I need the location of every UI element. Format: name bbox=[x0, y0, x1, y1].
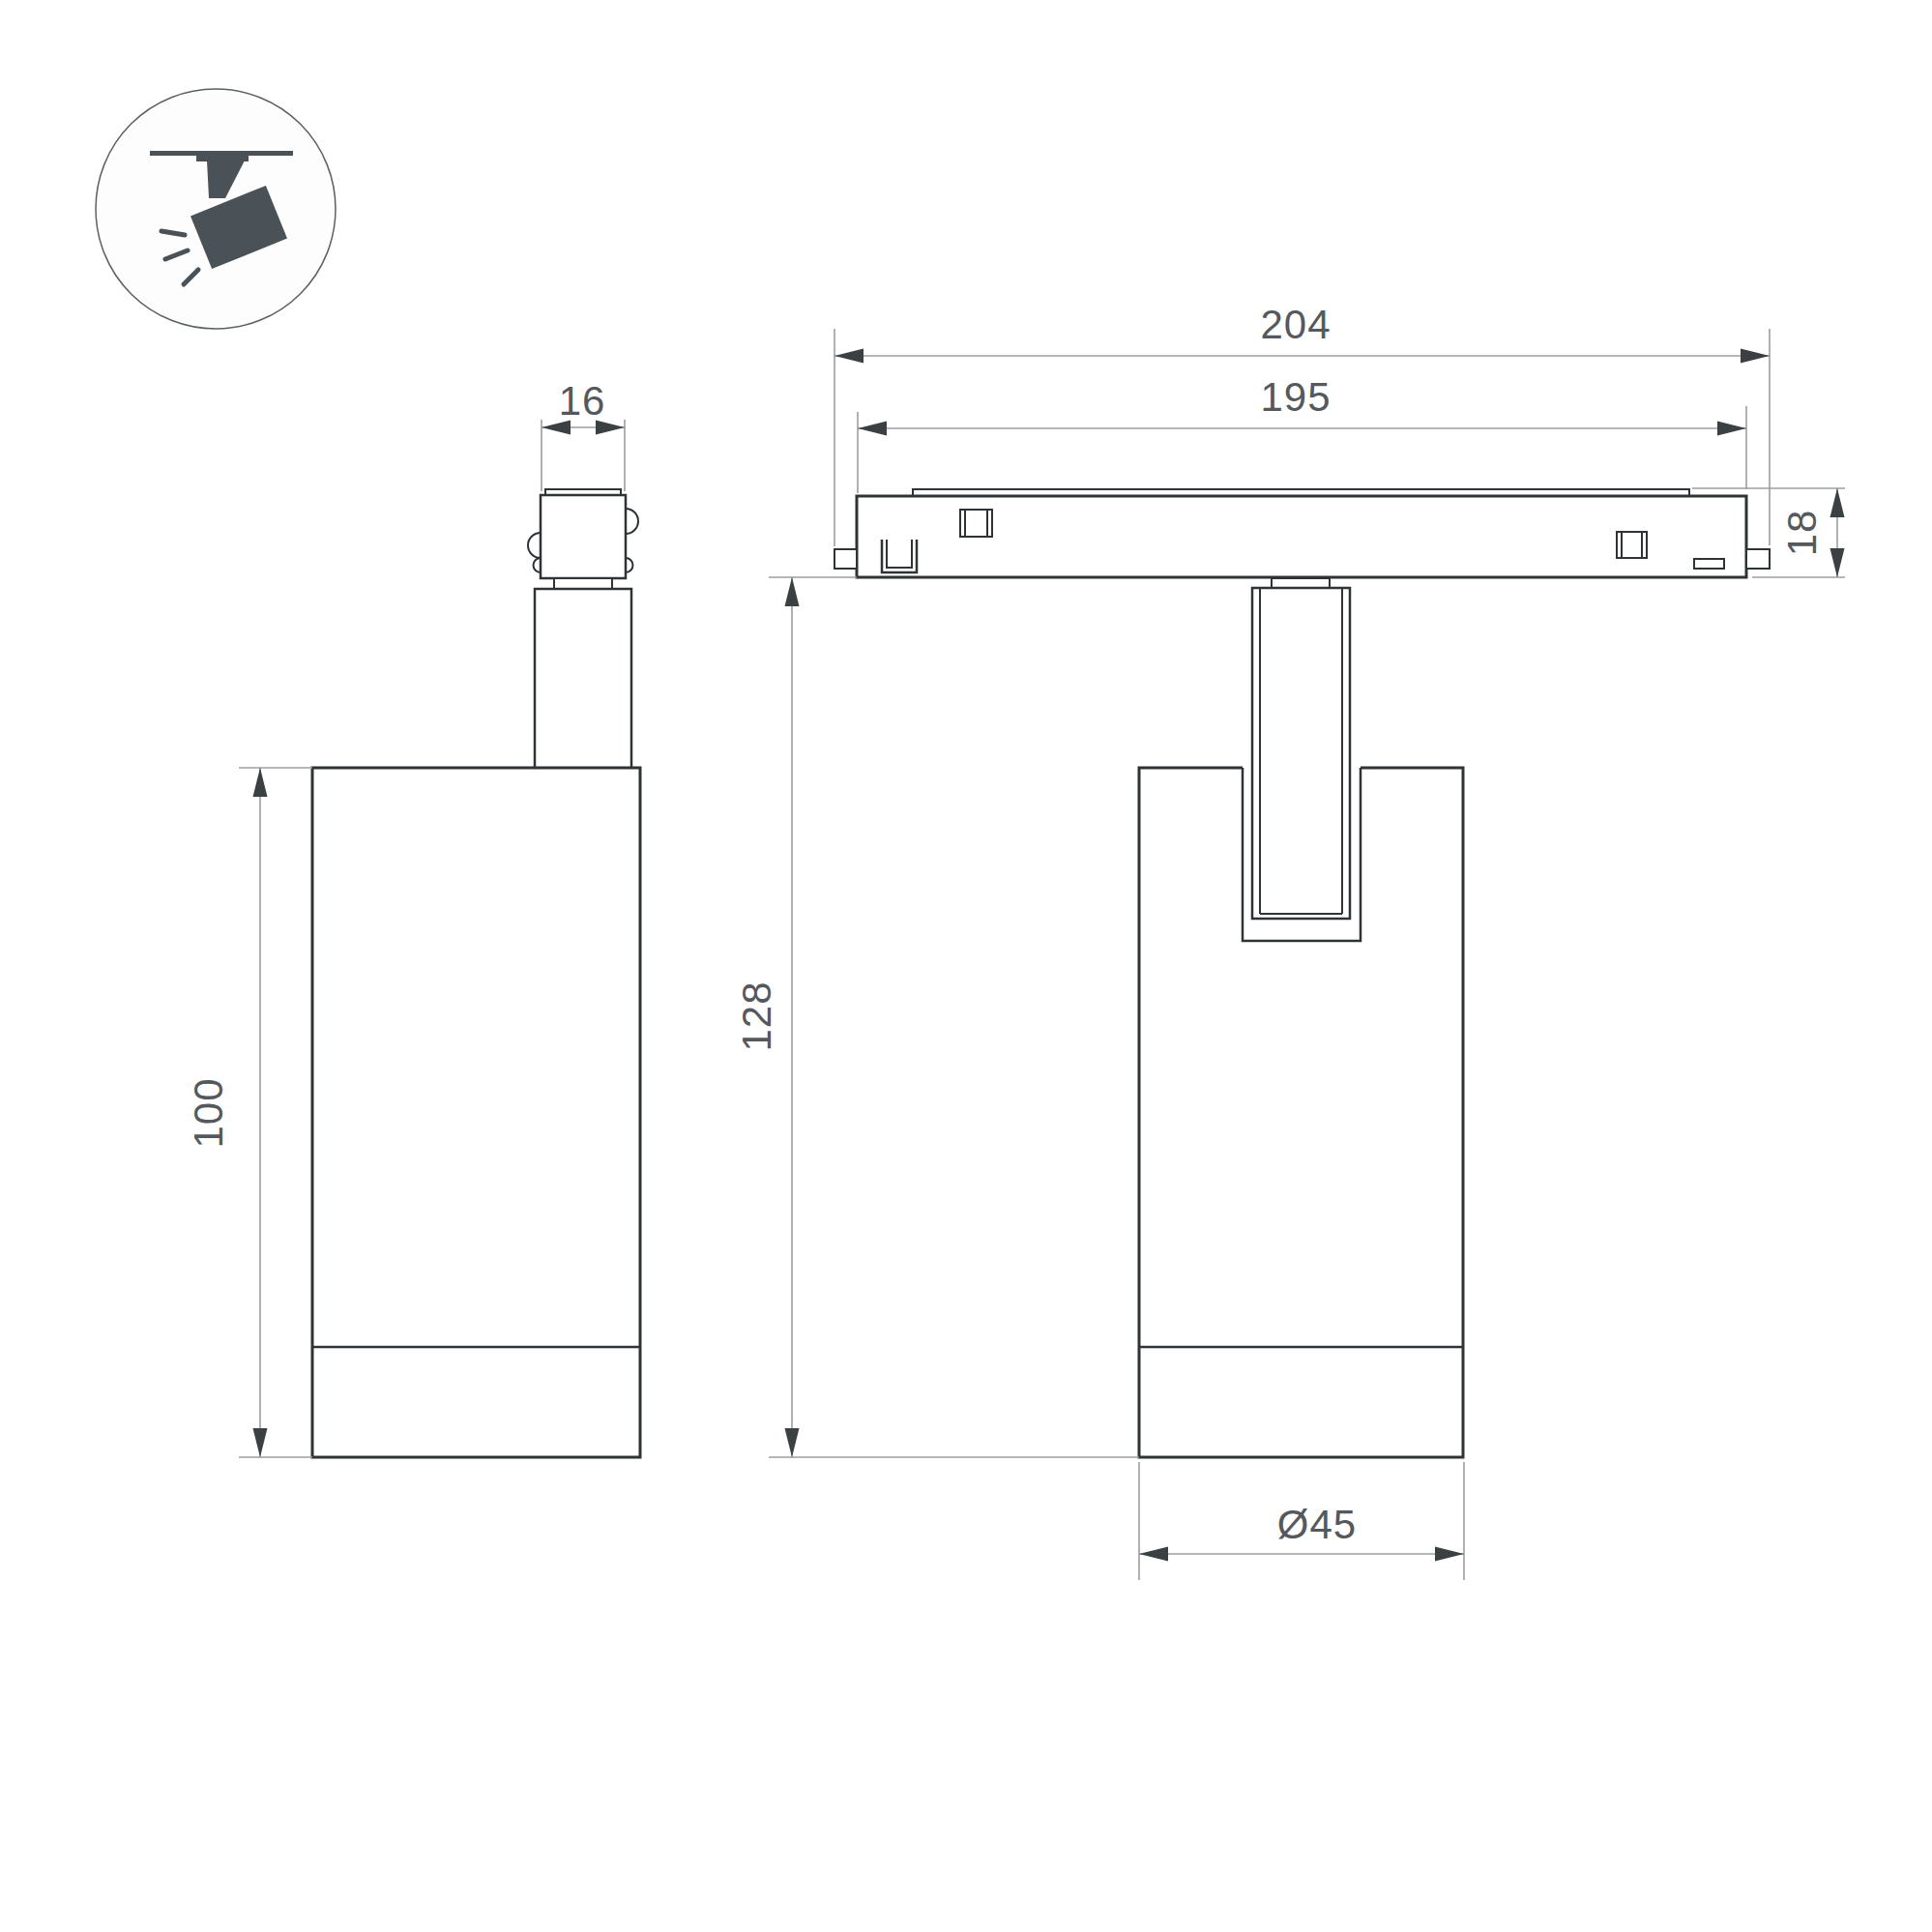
arrowhead-left bbox=[1139, 1547, 1168, 1562]
dimension-body-diameter: Ø45 bbox=[1139, 1462, 1464, 1580]
track-mount-icon bbox=[196, 151, 249, 161]
lamp-body-side bbox=[312, 768, 640, 1457]
rail-slot bbox=[1694, 559, 1724, 569]
adapter-neck bbox=[554, 578, 612, 589]
arrowhead-down bbox=[1830, 548, 1845, 577]
arrowhead-up bbox=[1830, 488, 1845, 517]
arrowhead-up bbox=[253, 768, 268, 797]
arrowhead-up bbox=[785, 577, 800, 606]
arrowhead-left bbox=[834, 349, 864, 364]
stem-side bbox=[535, 589, 631, 769]
dimension-label: Ø45 bbox=[1277, 1502, 1357, 1547]
arrowhead-down bbox=[253, 1428, 268, 1457]
dimension-body-height: 100 bbox=[186, 768, 312, 1457]
rail-end-clip-left bbox=[834, 549, 857, 569]
side-view bbox=[312, 489, 640, 1457]
arrowhead-left bbox=[858, 422, 887, 436]
dimension-label: 16 bbox=[559, 378, 606, 424]
adapter-ear-left bbox=[528, 533, 541, 558]
rail-end-clip-right bbox=[1746, 549, 1770, 569]
dimension-label: 128 bbox=[734, 981, 779, 1051]
technical-drawing-canvas: 16 100 bbox=[0, 0, 1932, 1932]
stem-front bbox=[1252, 588, 1350, 919]
arrowhead-right bbox=[1435, 1547, 1464, 1562]
adapter-ear-right bbox=[626, 509, 638, 534]
drawing-page: 16 100 bbox=[0, 0, 1932, 1932]
arrowhead-right bbox=[1717, 422, 1746, 436]
arrowhead-down bbox=[785, 1428, 800, 1457]
dimension-overall-height: 128 bbox=[734, 577, 1139, 1457]
dimension-label: 18 bbox=[1779, 510, 1825, 557]
dimension-label: 204 bbox=[1260, 302, 1331, 347]
track-adapter bbox=[541, 495, 626, 578]
dimension-adapter-width: 16 bbox=[542, 378, 625, 491]
front-view bbox=[834, 489, 1770, 1457]
stem-connector bbox=[1272, 578, 1330, 588]
arrowhead-right bbox=[1741, 349, 1770, 364]
dimension-label: 100 bbox=[186, 1077, 231, 1148]
dimension-label: 195 bbox=[1260, 374, 1331, 420]
spotlight-icon-badge bbox=[96, 89, 336, 329]
dimension-track-body-length: 195 bbox=[858, 374, 1746, 493]
